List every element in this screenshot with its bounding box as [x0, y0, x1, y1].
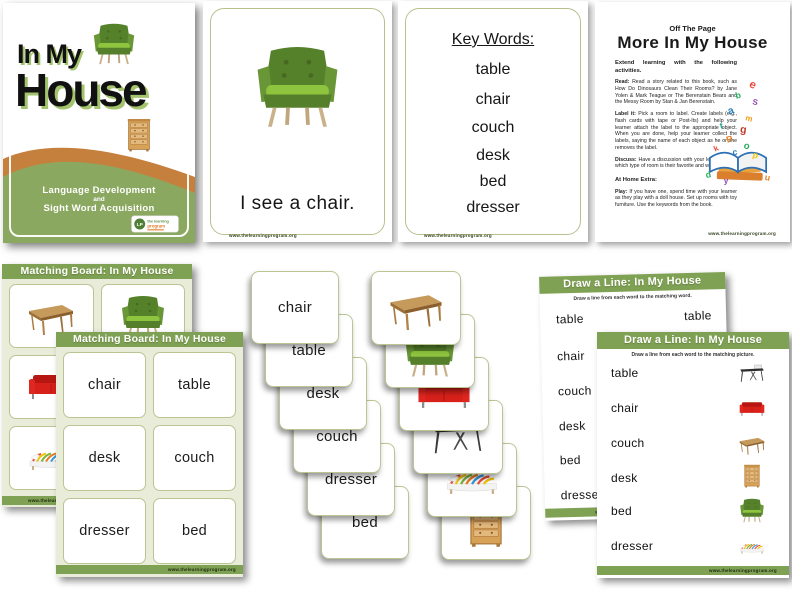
cover-tagline: Language Development and Sight Word Acqu…	[23, 185, 175, 214]
svg-text:LP: LP	[137, 222, 144, 228]
green-armchair-icon	[250, 35, 345, 135]
board-cell: dresser	[63, 498, 146, 564]
board-cell: table	[153, 352, 236, 418]
dl-left-word: desk	[559, 419, 586, 434]
svg-text:a: a	[726, 104, 736, 117]
svg-text:e: e	[747, 78, 758, 92]
cell-word: chair	[88, 377, 121, 393]
svg-text:u: u	[764, 172, 771, 183]
sheet-footer-bar: www.thelearningprogram.org	[56, 565, 243, 574]
wooden-table-icon	[733, 430, 771, 458]
flashcard-page: I see a chair. www.thelearningprogram.or…	[203, 1, 392, 242]
green-armchair-icon	[733, 496, 771, 524]
cover-title-line2: House	[15, 63, 146, 117]
dl-word: chair	[611, 401, 639, 415]
black-desk-icon	[733, 360, 771, 388]
keyword-desk: desk	[398, 147, 588, 165]
svg-text:o: o	[743, 140, 751, 152]
tagline-line3: Sight Word Acquisition	[23, 203, 175, 214]
card-word: couch	[316, 428, 358, 445]
svg-text:m: m	[745, 113, 754, 124]
word-card: chair	[251, 271, 339, 344]
dl-word: couch	[611, 436, 645, 450]
tagline-line1: Language Development	[23, 185, 175, 196]
svg-text:R: R	[725, 133, 735, 145]
sheet-footer-bar: www.thelearningprogram.org	[597, 566, 789, 575]
activity-title: More In My House	[595, 33, 790, 53]
dl-left-word: bed	[560, 453, 581, 468]
book-letters-burst-icon: ebSamtgRockpduy	[694, 69, 782, 194]
cell-word: bed	[182, 523, 207, 539]
cell-word: dresser	[79, 523, 129, 539]
matching-board-words-title: Matching Board: In My House	[56, 332, 243, 347]
svg-text:b: b	[734, 90, 742, 101]
dl-right-word: table	[684, 308, 712, 323]
draw-line-words-title: Draw a Line: In My House	[539, 272, 725, 294]
keyword-bed: bed	[398, 173, 588, 191]
keyword-table: table	[398, 61, 588, 79]
dl-left-word: couch	[558, 384, 592, 399]
svg-text:k: k	[712, 143, 720, 153]
wooden-table-icon	[379, 279, 453, 337]
dl-word: dresser	[611, 539, 653, 553]
svg-text:t: t	[719, 120, 724, 130]
card-word: table	[292, 342, 326, 359]
dl-word: table	[611, 366, 639, 380]
draw-line-pictures-page: Draw a Line: In My House Draw a line fro…	[597, 332, 789, 578]
card-word: chair	[278, 299, 312, 316]
cell-word: table	[178, 377, 211, 393]
product-preview-collage: In My House Language Development and Sig…	[0, 0, 792, 612]
keyword-couch: couch	[398, 119, 588, 137]
learning-program-logo-icon: LPthe learningprogram	[131, 215, 179, 233]
dl-word: desk	[611, 471, 638, 485]
picture-card	[371, 271, 461, 345]
page-footer-url: www.thelearningprogram.org	[229, 233, 297, 238]
svg-text:g: g	[739, 123, 747, 136]
word-cell-grid: chair table desk couch dresser bed	[63, 352, 236, 564]
card-word: dresser	[325, 471, 377, 488]
dl-left-word: chair	[557, 349, 585, 364]
dl-left-word: table	[556, 312, 584, 327]
svg-text:program: program	[147, 223, 165, 228]
draw-line-words-subtitle: Draw a line from each word to the matchi…	[540, 292, 726, 303]
page-footer-url: www.thelearningprogram.org	[56, 565, 243, 574]
tagline-line2: and	[23, 196, 175, 203]
svg-text:S: S	[752, 97, 759, 107]
dl-word: bed	[611, 504, 632, 518]
matching-board-pictures-title: Matching Board: In My House	[2, 264, 192, 279]
activity-page: Off The Page More In My House Extend lea…	[595, 2, 790, 242]
page-footer-url: www.thelearningprogram.org	[424, 233, 492, 238]
activity-kicker: Off The Page	[595, 24, 790, 33]
cell-word: desk	[89, 450, 121, 466]
draw-line-pictures-title: Draw a Line: In My House	[597, 332, 789, 349]
keyword-chair: chair	[398, 91, 588, 109]
svg-text:y: y	[724, 176, 729, 185]
board-cell: bed	[153, 498, 236, 564]
board-cell: desk	[63, 425, 146, 491]
red-couch-icon	[733, 395, 771, 423]
matching-board-words: Matching Board: In My House chair table …	[56, 332, 243, 577]
page-footer-url: www.thelearningprogram.org	[708, 231, 776, 236]
page-footer-url: www.thelearningprogram.org	[597, 566, 789, 575]
card-word: bed	[352, 514, 378, 531]
cell-word: couch	[174, 450, 214, 466]
green-armchair-icon	[87, 19, 141, 67]
svg-text:c: c	[732, 147, 738, 157]
card-word: desk	[307, 385, 340, 402]
cover-page: In My House Language Development and Sig…	[3, 3, 195, 243]
board-cell: couch	[153, 425, 236, 491]
keywords-heading: Key Words:	[398, 31, 588, 49]
keyword-dresser: dresser	[398, 199, 588, 217]
flashcard-caption: I see a chair.	[203, 193, 392, 215]
wooden-dresser-icon	[733, 462, 771, 490]
keywords-page: Key Words: table chair couch desk bed dr…	[398, 1, 588, 242]
striped-bed-icon	[733, 533, 771, 561]
board-cell: chair	[63, 352, 146, 418]
draw-line-pictures-subtitle: Draw a line from each word to the matchi…	[597, 352, 789, 358]
